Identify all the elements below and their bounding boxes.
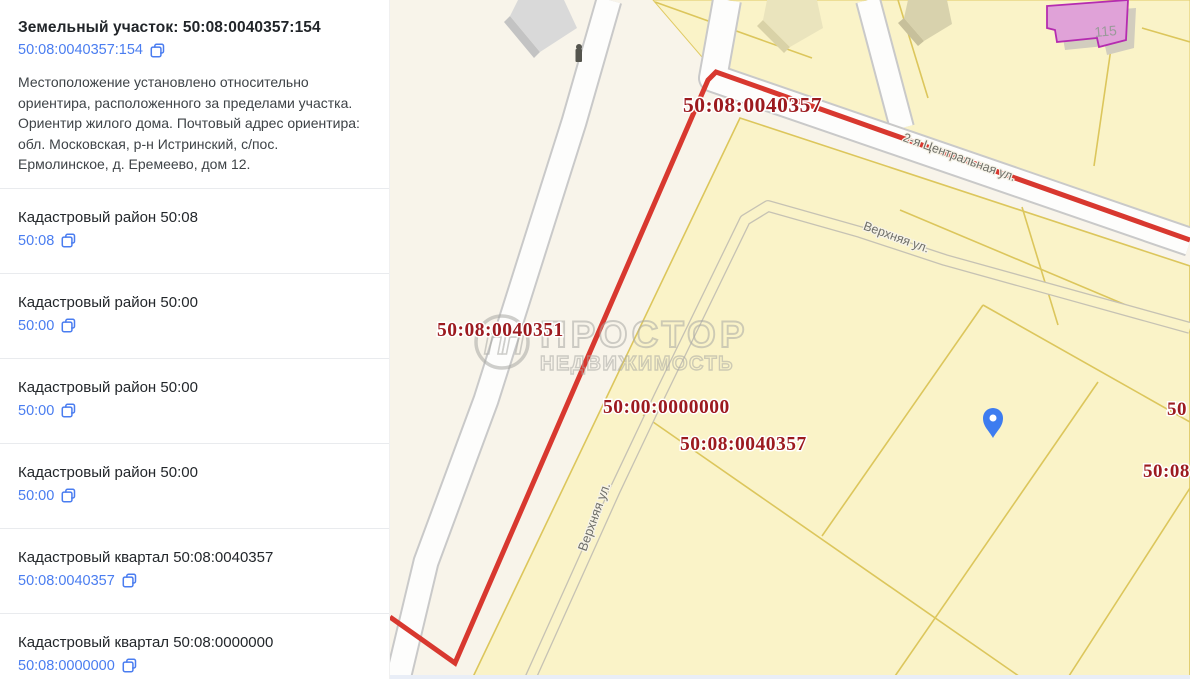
sidebar: Земельный участок: 50:08:0040357:154 50:… [0, 0, 390, 679]
label-edge-right-top: 50 [1167, 399, 1187, 420]
section-title: Кадастровый район 50:00 [18, 379, 369, 396]
section-code-link[interactable]: 50:08:0000000 [18, 658, 115, 674]
section-quarter-1: Кадастровый квартал 50:08:0040357 50:08:… [18, 549, 369, 614]
divider [0, 528, 389, 529]
section-title: Кадастровый район 50:08 [18, 209, 369, 226]
section-title: Кадастровый район 50:00 [18, 464, 369, 481]
copy-icon[interactable] [61, 403, 76, 418]
copy-icon[interactable] [61, 233, 76, 248]
copy-icon[interactable] [150, 43, 165, 58]
section-code-link[interactable]: 50:08 [18, 233, 54, 249]
divider [0, 613, 389, 614]
copy-icon[interactable] [61, 488, 76, 503]
copy-icon[interactable] [122, 658, 137, 673]
divider [0, 188, 389, 189]
cadastral-map-app: Земельный участок: 50:08:0040357:154 50:… [0, 0, 1190, 679]
watermark-line2: НЕДВИЖИМОСТЬ [540, 353, 734, 375]
watermark-line1: ПРОСТОР [540, 314, 749, 355]
label-zone-center: 50:00:0000000 [603, 397, 730, 418]
parcel-code-row: 50:08:0040357:154 [18, 42, 369, 58]
copy-icon[interactable] [61, 318, 76, 333]
label-quarter-left: 50:08:0040351 [437, 320, 564, 341]
label-quarter-top: 50:08:0040357 [683, 93, 822, 117]
section-quarter-2: Кадастровый квартал 50:08:0000000 50:08:… [18, 634, 369, 674]
label-edge-right-bottom: 50:08 [1143, 461, 1190, 482]
parcel-description: Местоположение установлено относительно … [18, 72, 366, 175]
section-district-4: Кадастровый район 50:00 50:00 [18, 464, 369, 529]
map-canvas[interactable]: 115 ПП ПРОСТОР НЕДВИЖИМОСТЬ 2-я Централь… [390, 0, 1190, 679]
section-district-2: Кадастровый район 50:00 50:00 [18, 294, 369, 359]
copy-icon[interactable] [122, 573, 137, 588]
section-district-3: Кадастровый район 50:00 50:00 [18, 379, 369, 444]
section-code-link[interactable]: 50:00 [18, 318, 54, 334]
section-title: Кадастровый район 50:00 [18, 294, 369, 311]
monument-icon [576, 44, 583, 62]
page-title: Земельный участок: 50:08:0040357:154 [18, 19, 369, 37]
divider [0, 358, 389, 359]
section-title: Кадастровый квартал 50:08:0040357 [18, 549, 369, 566]
section-code-link[interactable]: 50:00 [18, 403, 54, 419]
building-number: 115 [1094, 22, 1118, 40]
section-code-link[interactable]: 50:00 [18, 488, 54, 504]
section-title: Кадастровый квартал 50:08:0000000 [18, 634, 369, 651]
parcel-code-link[interactable]: 50:08:0040357:154 [18, 42, 143, 58]
section-code-link[interactable]: 50:08:0040357 [18, 573, 115, 589]
section-district-1: Кадастровый район 50:08 50:08 [18, 209, 369, 274]
divider [0, 273, 389, 274]
label-quarter-center: 50:08:0040357 [680, 434, 807, 455]
map-bottom-strip [390, 675, 1190, 679]
divider [0, 443, 389, 444]
